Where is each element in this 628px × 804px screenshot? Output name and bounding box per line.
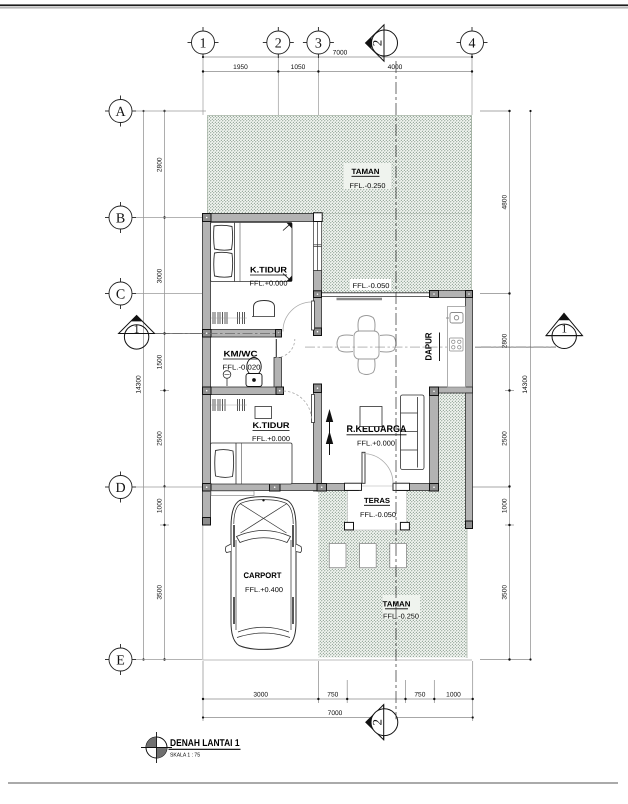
- svg-text:D: D: [115, 481, 125, 496]
- svg-text:TERAS: TERAS: [364, 496, 390, 505]
- svg-text:3: 3: [315, 37, 322, 52]
- svg-text:1500: 1500: [157, 354, 164, 369]
- svg-text:1000: 1000: [502, 498, 509, 513]
- svg-text:2800: 2800: [502, 333, 509, 348]
- svg-text:2800: 2800: [157, 157, 164, 172]
- svg-text:DAPUR: DAPUR: [424, 332, 434, 360]
- svg-text:FFL.-0.250: FFL.-0.250: [383, 614, 419, 621]
- svg-text:2500: 2500: [502, 431, 509, 446]
- svg-text:SKALA 1 : 75: SKALA 1 : 75: [170, 753, 200, 759]
- svg-text:14300: 14300: [522, 375, 529, 394]
- svg-text:E: E: [116, 654, 125, 669]
- svg-text:3000: 3000: [253, 692, 268, 699]
- svg-text:FFL.+0.000: FFL.+0.000: [357, 441, 395, 448]
- svg-text:CARPORT: CARPORT: [244, 571, 282, 580]
- svg-text:1000: 1000: [157, 498, 164, 513]
- svg-text:FFL.-0.050: FFL.-0.050: [353, 283, 390, 290]
- svg-text:2: 2: [275, 37, 282, 52]
- svg-text:FFL.+0.000: FFL.+0.000: [252, 436, 290, 443]
- svg-text:TAMAN: TAMAN: [352, 167, 380, 176]
- svg-text:750: 750: [414, 692, 425, 699]
- svg-text:1: 1: [200, 37, 207, 52]
- svg-text:1: 1: [561, 322, 567, 336]
- svg-text:7000: 7000: [328, 710, 343, 717]
- svg-text:FFL.+0.000: FFL.+0.000: [250, 281, 288, 288]
- svg-text:1: 1: [134, 322, 140, 336]
- svg-text:1950: 1950: [233, 64, 248, 71]
- svg-text:FFL.-0.020: FFL.-0.020: [223, 365, 261, 372]
- svg-text:A: A: [115, 105, 126, 120]
- svg-text:4800: 4800: [502, 195, 509, 210]
- svg-text:3500: 3500: [157, 585, 164, 600]
- svg-text:7000: 7000: [333, 50, 348, 57]
- svg-text:4: 4: [469, 37, 476, 52]
- svg-text:FFL.+0.400: FFL.+0.400: [245, 587, 283, 594]
- svg-text:750: 750: [327, 692, 338, 699]
- svg-text:3500: 3500: [502, 585, 509, 600]
- svg-text:K.TIDUR: K.TIDUR: [250, 266, 287, 275]
- svg-text:2500: 2500: [157, 431, 164, 446]
- svg-text:KM/WC: KM/WC: [224, 350, 258, 359]
- svg-text:FFL.-0.250: FFL.-0.250: [350, 183, 386, 190]
- svg-text:B: B: [116, 212, 125, 227]
- svg-text:3000: 3000: [157, 268, 164, 283]
- svg-text:4000: 4000: [388, 64, 403, 71]
- svg-text:1000: 1000: [446, 692, 461, 699]
- svg-text:2: 2: [370, 719, 385, 726]
- svg-text:DENAH LANTAI 1: DENAH LANTAI 1: [170, 738, 240, 749]
- svg-text:14300: 14300: [136, 375, 143, 394]
- svg-text:2: 2: [370, 40, 385, 47]
- svg-text:C: C: [116, 288, 125, 303]
- svg-text:1050: 1050: [291, 64, 306, 71]
- svg-text:K.TIDUR: K.TIDUR: [253, 421, 290, 430]
- svg-text:FFL.-0.050: FFL.-0.050: [360, 512, 396, 519]
- svg-text:TAMAN: TAMAN: [383, 600, 411, 609]
